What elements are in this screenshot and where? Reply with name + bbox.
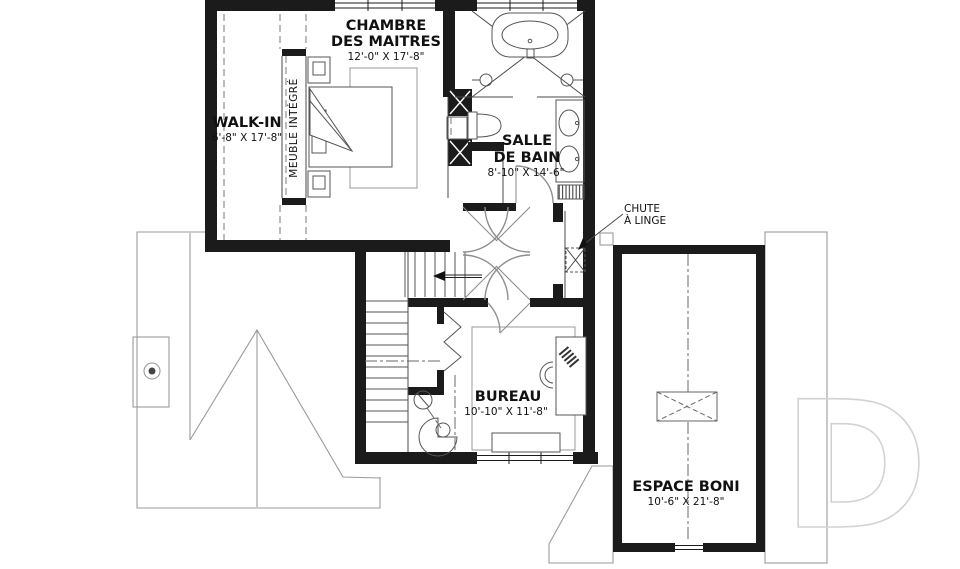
walk-in-dimensions: 6'-8" X 17'-8" [212,132,282,144]
towel-radiator [558,185,584,199]
floor-plan-page: D [0,0,960,569]
bathroom-label-line1: SALLE [502,133,552,149]
bedroom-furniture [308,57,417,197]
master-bedroom-label-line2: DES MAITRES [331,34,441,50]
ceiling-fixture [414,391,457,456]
floor-plan-canvas: D [0,0,960,569]
bonus-space-dimensions: 10'-6" X 21'-8" [648,496,725,508]
wall-sconce [561,74,583,86]
window-office [477,452,573,464]
master-bedroom-label-line1: CHAMBRE [346,18,427,34]
staircase [365,252,482,422]
chimney-symbol [133,337,169,407]
office-door [488,303,530,333]
window-bedroom [335,0,435,11]
bench [492,433,560,452]
window-bonus-space [675,543,703,552]
linen-cabinet [447,117,467,139]
bathtub [492,13,568,58]
laundry-chute-label-line1: CHUTE [624,203,660,215]
labels-layer: CHAMBRE DES MAITRES 12'-0" X 17'-8" WALK… [212,18,740,508]
roof-notch [600,233,613,245]
desk-chair [540,362,553,388]
office-label: BUREAU [475,389,541,405]
roof-section-left [549,466,613,563]
closet-bifold-door [444,312,461,371]
brand-watermark-letter: D [782,364,928,569]
office-dimensions: 10'-10" X 11'-8" [464,406,548,418]
walk-in-label: WALK-IN [212,115,281,131]
stair-direction-arrow [433,271,482,281]
built-in-furniture-label: MEUBLE INTÉGRÉ [287,78,300,177]
bonus-space-label: ESPACE BONI [632,479,739,495]
doors-layer [444,166,553,371]
bathroom-dimensions: 8'-10" X 14'-6" [488,167,565,179]
nightstand [308,171,330,197]
bed [309,87,392,167]
hallway-double-doors [463,207,530,300]
attic-access-symbol [657,392,717,421]
laundry-chute-label-line2: À LINGE [624,214,666,227]
toilet [468,112,501,139]
nightstand [308,57,330,83]
window-bathroom [477,0,577,11]
desk [556,337,586,415]
master-bedroom-dimensions: 12'-0" X 17'-8" [348,51,425,63]
bathroom-label-line2: DE BAIN [494,150,561,166]
